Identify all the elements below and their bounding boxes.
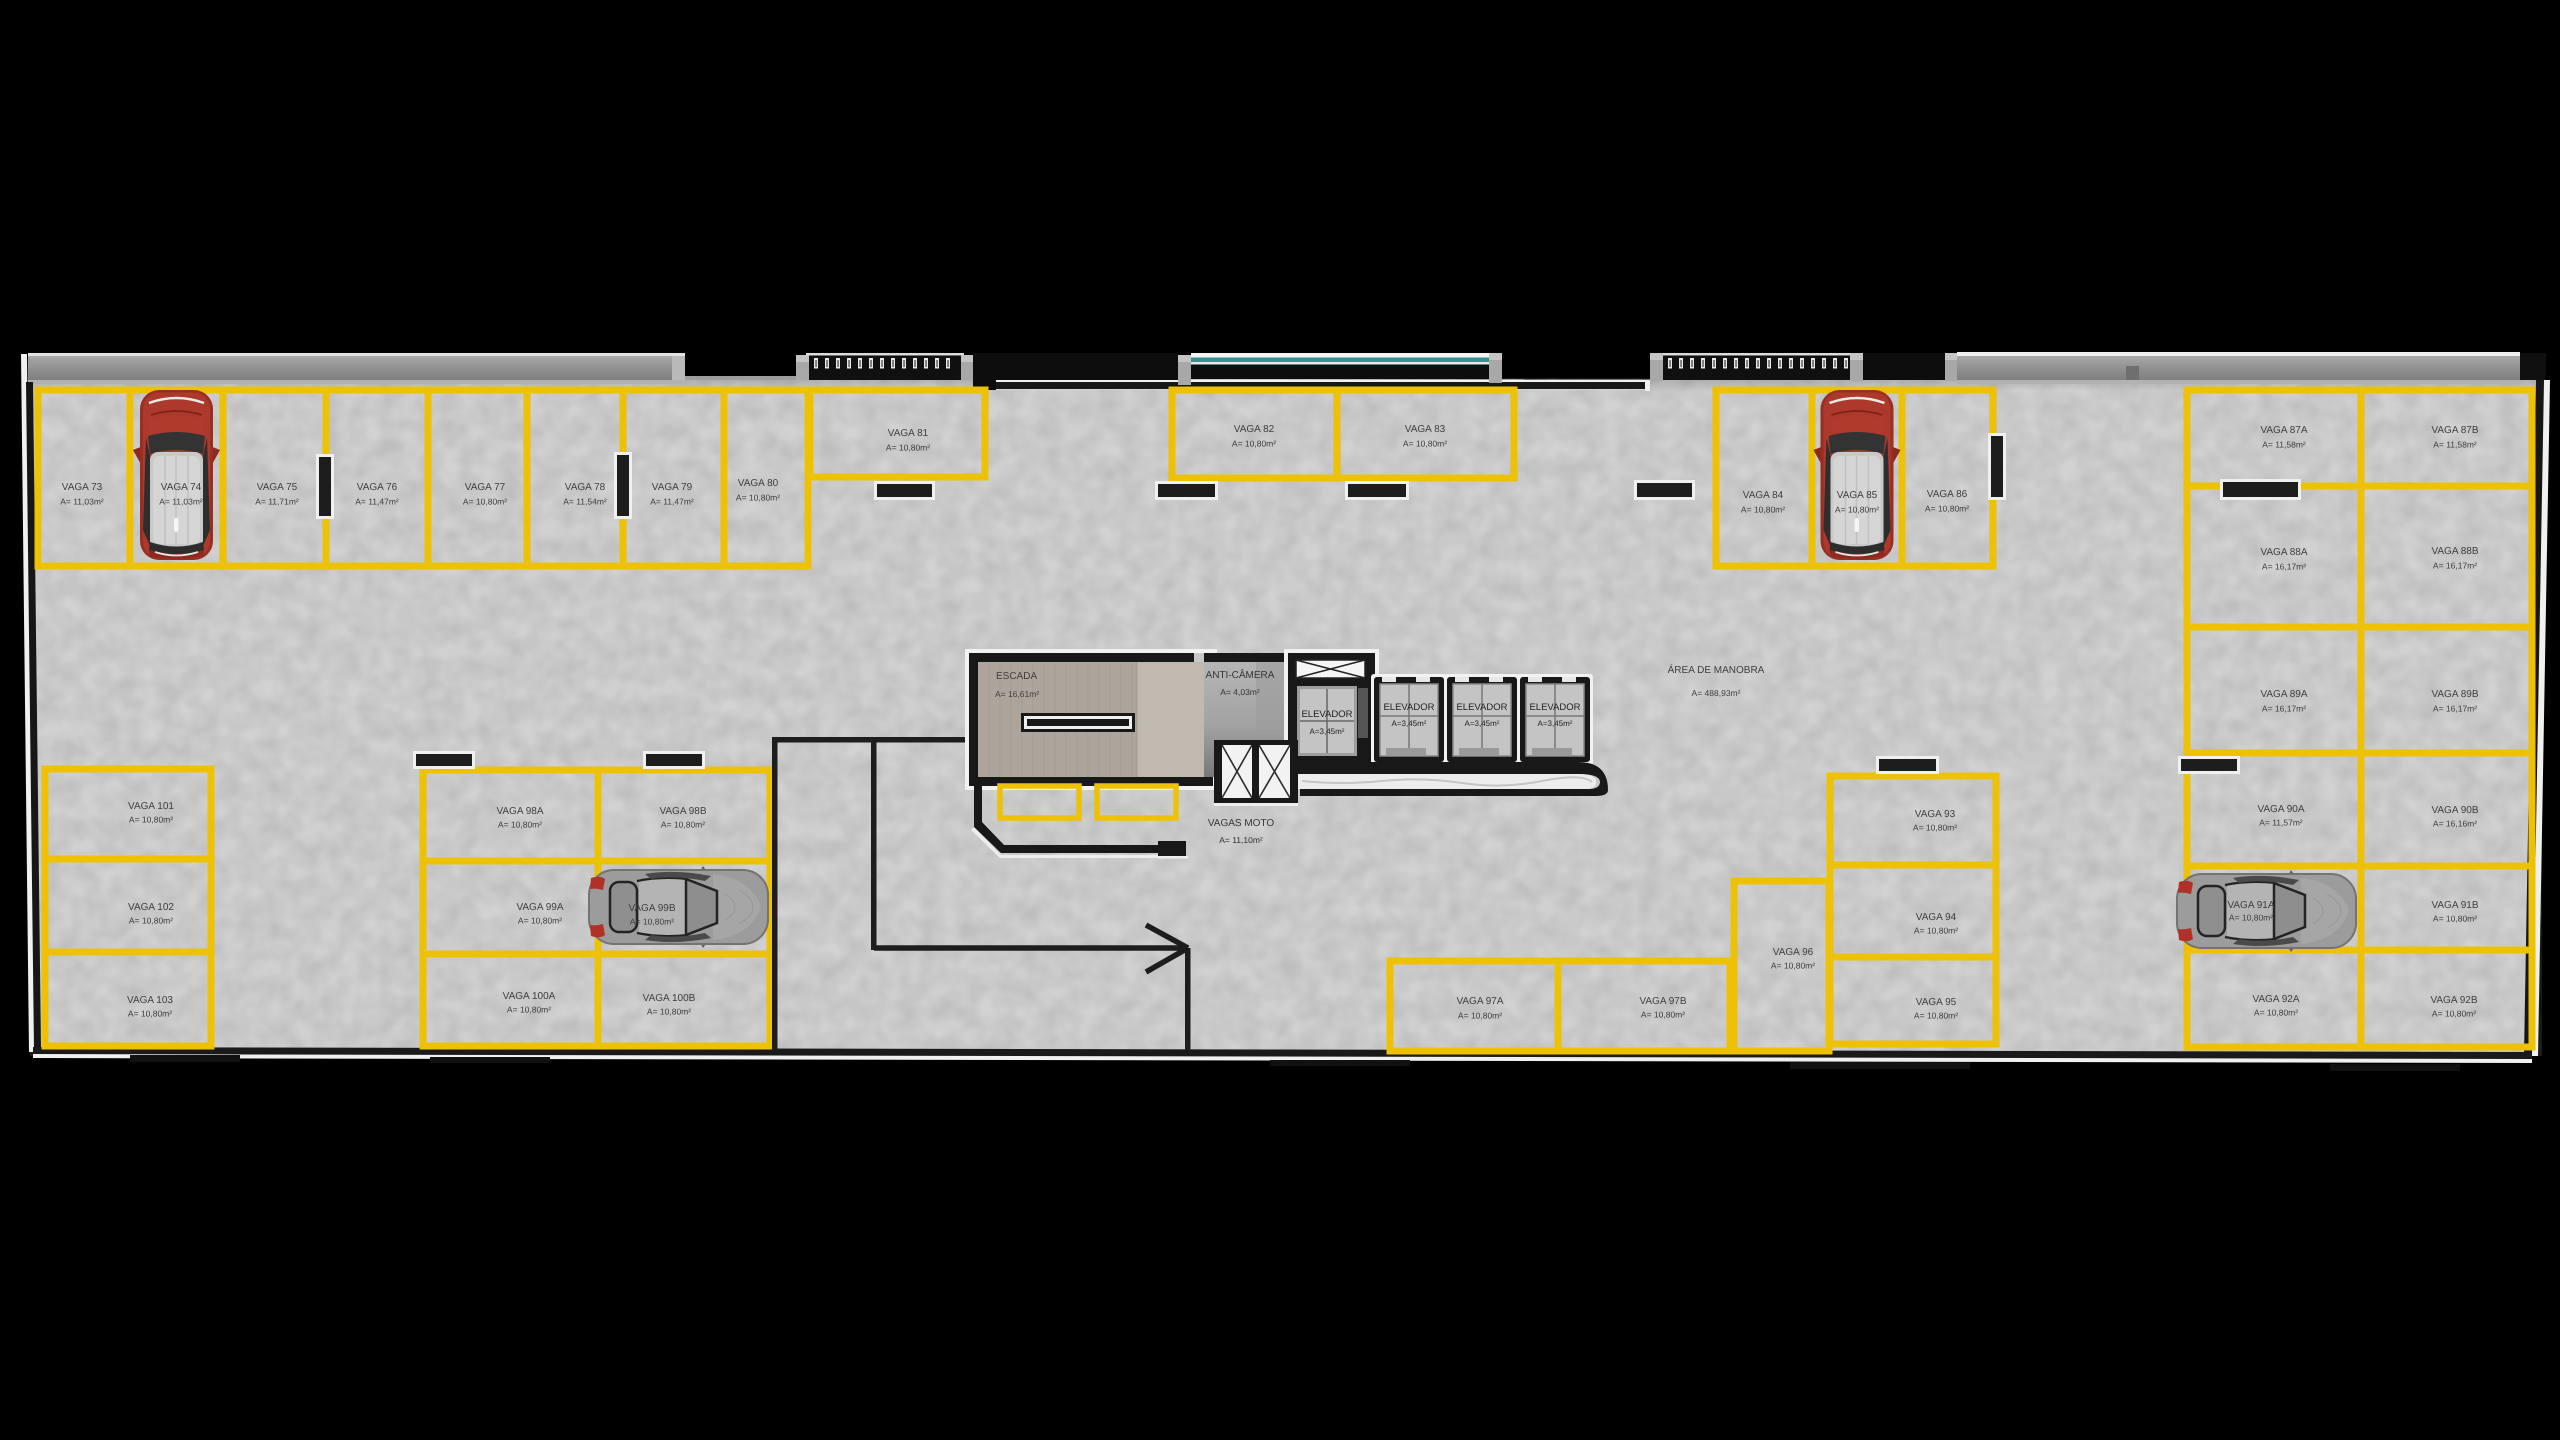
svg-text:A= 10,80m²: A= 10,80m² xyxy=(1741,505,1785,515)
svg-text:VAGA 92B: VAGA 92B xyxy=(2430,995,2477,1006)
svg-text:VAGA 89B: VAGA 89B xyxy=(2431,689,2478,700)
svg-text:A= 10,80m²: A= 10,80m² xyxy=(1925,504,1969,514)
svg-text:VAGA 78: VAGA 78 xyxy=(565,482,606,493)
svg-text:A= 10,80m²: A= 10,80m² xyxy=(128,1009,172,1019)
svg-text:ELEVADOR: ELEVADOR xyxy=(1301,709,1352,720)
svg-text:A= 10,80m²: A= 10,80m² xyxy=(2254,1008,2298,1018)
svg-text:A= 10,80m²: A= 10,80m² xyxy=(1835,505,1879,515)
svg-text:VAGA 81: VAGA 81 xyxy=(888,428,929,439)
svg-text:A= 11,47m²: A= 11,47m² xyxy=(355,497,399,507)
svg-text:A= 10,80m²: A= 10,80m² xyxy=(1771,961,1815,971)
svg-text:A= 10,80m²: A= 10,80m² xyxy=(736,493,780,503)
svg-text:A= 11,03m²: A= 11,03m² xyxy=(159,497,203,507)
svg-text:A= 10,80m²: A= 10,80m² xyxy=(1641,1010,1685,1020)
svg-text:A= 10,80m²: A= 10,80m² xyxy=(1914,1011,1958,1021)
svg-text:A= 11,58m²: A= 11,58m² xyxy=(2262,440,2306,450)
svg-text:VAGA 79: VAGA 79 xyxy=(652,482,693,493)
svg-text:A= 11,47m²: A= 11,47m² xyxy=(650,497,694,507)
svg-text:VAGA 75: VAGA 75 xyxy=(257,482,298,493)
svg-text:A= 16,17m²: A= 16,17m² xyxy=(2262,562,2306,572)
svg-text:VAGA 87B: VAGA 87B xyxy=(2431,425,2478,436)
svg-text:A= 16,17m²: A= 16,17m² xyxy=(2262,704,2306,714)
svg-text:A= 488,93m²: A= 488,93m² xyxy=(1692,688,1741,698)
svg-text:VAGA 99B: VAGA 99B xyxy=(628,903,675,914)
svg-text:ESCADA: ESCADA xyxy=(996,671,1037,682)
svg-text:A=3,45m²: A=3,45m² xyxy=(1465,719,1500,728)
svg-text:A= 10,80m²: A= 10,80m² xyxy=(129,916,173,926)
svg-text:ANTI-CÂMERA: ANTI-CÂMERA xyxy=(1206,669,1275,681)
svg-text:A= 11,57m²: A= 11,57m² xyxy=(2259,818,2303,828)
svg-text:A=3,45m²: A=3,45m² xyxy=(1310,727,1345,736)
svg-text:VAGA 101: VAGA 101 xyxy=(128,801,174,812)
svg-text:A= 16,16m²: A= 16,16m² xyxy=(2433,819,2477,829)
svg-text:A= 10,80m²: A= 10,80m² xyxy=(2433,914,2477,924)
svg-text:VAGA 97A: VAGA 97A xyxy=(1456,996,1503,1007)
svg-text:A=3,45m²: A=3,45m² xyxy=(1538,719,1573,728)
svg-text:VAGA 82: VAGA 82 xyxy=(1234,424,1275,435)
svg-text:A= 10,80m²: A= 10,80m² xyxy=(1914,926,1958,936)
svg-text:VAGA 100A: VAGA 100A xyxy=(503,991,556,1002)
svg-text:VAGA 96: VAGA 96 xyxy=(1773,947,1814,958)
svg-text:A= 10,80m²: A= 10,80m² xyxy=(463,497,507,507)
svg-text:A= 10,80m²: A= 10,80m² xyxy=(1232,439,1276,449)
svg-text:VAGA 91B: VAGA 91B xyxy=(2431,900,2478,911)
svg-text:VAGA 100B: VAGA 100B xyxy=(643,993,696,1004)
svg-text:A= 10,80m²: A= 10,80m² xyxy=(2229,913,2273,923)
svg-text:VAGA 98A: VAGA 98A xyxy=(496,806,543,817)
svg-text:VAGA 88B: VAGA 88B xyxy=(2431,546,2478,557)
svg-text:VAGA 91A: VAGA 91A xyxy=(2227,900,2274,911)
svg-text:VAGA 87A: VAGA 87A xyxy=(2260,425,2307,436)
svg-text:A= 4,03m²: A= 4,03m² xyxy=(1220,687,1260,697)
svg-text:A= 11,03m²: A= 11,03m² xyxy=(60,497,104,507)
svg-text:A= 10,80m²: A= 10,80m² xyxy=(1403,439,1447,449)
svg-text:A= 11,10m²: A= 11,10m² xyxy=(1219,835,1263,845)
svg-text:VAGA 103: VAGA 103 xyxy=(127,995,173,1006)
svg-text:A= 10,80m²: A= 10,80m² xyxy=(129,815,173,825)
svg-text:VAGA 95: VAGA 95 xyxy=(1916,997,1957,1008)
svg-text:VAGA 85: VAGA 85 xyxy=(1837,490,1878,501)
svg-text:VAGA 90A: VAGA 90A xyxy=(2257,804,2304,815)
svg-text:VAGA 76: VAGA 76 xyxy=(357,482,398,493)
svg-text:ELEVADOR: ELEVADOR xyxy=(1383,702,1434,713)
svg-text:A= 11,58m²: A= 11,58m² xyxy=(2433,440,2477,450)
svg-text:VAGAS MOTO: VAGAS MOTO xyxy=(1208,818,1275,829)
svg-text:A= 16,17m²: A= 16,17m² xyxy=(2433,561,2477,571)
svg-text:VAGA 74: VAGA 74 xyxy=(161,482,202,493)
svg-text:A= 16,61m²: A= 16,61m² xyxy=(995,689,1039,699)
svg-text:VAGA 93: VAGA 93 xyxy=(1915,809,1956,820)
svg-text:A= 10,80m²: A= 10,80m² xyxy=(1913,823,1957,833)
svg-text:A= 10,80m²: A= 10,80m² xyxy=(1458,1011,1502,1021)
svg-text:ELEVADOR: ELEVADOR xyxy=(1529,702,1580,713)
svg-text:A=3,45m²: A=3,45m² xyxy=(1392,719,1427,728)
svg-text:A= 10,80m²: A= 10,80m² xyxy=(518,916,562,926)
svg-text:A= 11,54m²: A= 11,54m² xyxy=(563,497,607,507)
svg-text:A= 10,80m²: A= 10,80m² xyxy=(507,1005,551,1015)
svg-text:VAGA 88A: VAGA 88A xyxy=(2260,547,2307,558)
svg-text:A= 10,80m²: A= 10,80m² xyxy=(647,1007,691,1017)
svg-text:VAGA 102: VAGA 102 xyxy=(128,902,174,913)
svg-text:A= 10,80m²: A= 10,80m² xyxy=(630,917,674,927)
svg-text:A= 10,80m²: A= 10,80m² xyxy=(886,443,930,453)
svg-text:VAGA 84: VAGA 84 xyxy=(1743,490,1784,501)
svg-text:VAGA 83: VAGA 83 xyxy=(1405,424,1446,435)
svg-text:A= 11,71m²: A= 11,71m² xyxy=(255,497,299,507)
svg-text:VAGA 92A: VAGA 92A xyxy=(2252,994,2299,1005)
svg-text:VAGA 86: VAGA 86 xyxy=(1927,489,1968,500)
svg-text:ELEVADOR: ELEVADOR xyxy=(1456,702,1507,713)
svg-text:A= 10,80m²: A= 10,80m² xyxy=(2432,1009,2476,1019)
svg-text:VAGA 89A: VAGA 89A xyxy=(2260,689,2307,700)
svg-text:VAGA 94: VAGA 94 xyxy=(1916,912,1957,923)
svg-text:VAGA 77: VAGA 77 xyxy=(465,482,506,493)
svg-text:VAGA 73: VAGA 73 xyxy=(62,482,103,493)
svg-text:VAGA 80: VAGA 80 xyxy=(738,478,779,489)
svg-text:A= 10,80m²: A= 10,80m² xyxy=(661,820,705,830)
svg-text:A= 10,80m²: A= 10,80m² xyxy=(498,820,542,830)
svg-text:VAGA 90B: VAGA 90B xyxy=(2431,805,2478,816)
svg-text:VAGA 97B: VAGA 97B xyxy=(1639,996,1686,1007)
svg-text:ÁREA DE MANOBRA: ÁREA DE MANOBRA xyxy=(1668,664,1765,676)
svg-text:VAGA 99A: VAGA 99A xyxy=(516,902,563,913)
svg-text:VAGA 98B: VAGA 98B xyxy=(659,806,706,817)
svg-text:A= 16,17m²: A= 16,17m² xyxy=(2433,704,2477,714)
